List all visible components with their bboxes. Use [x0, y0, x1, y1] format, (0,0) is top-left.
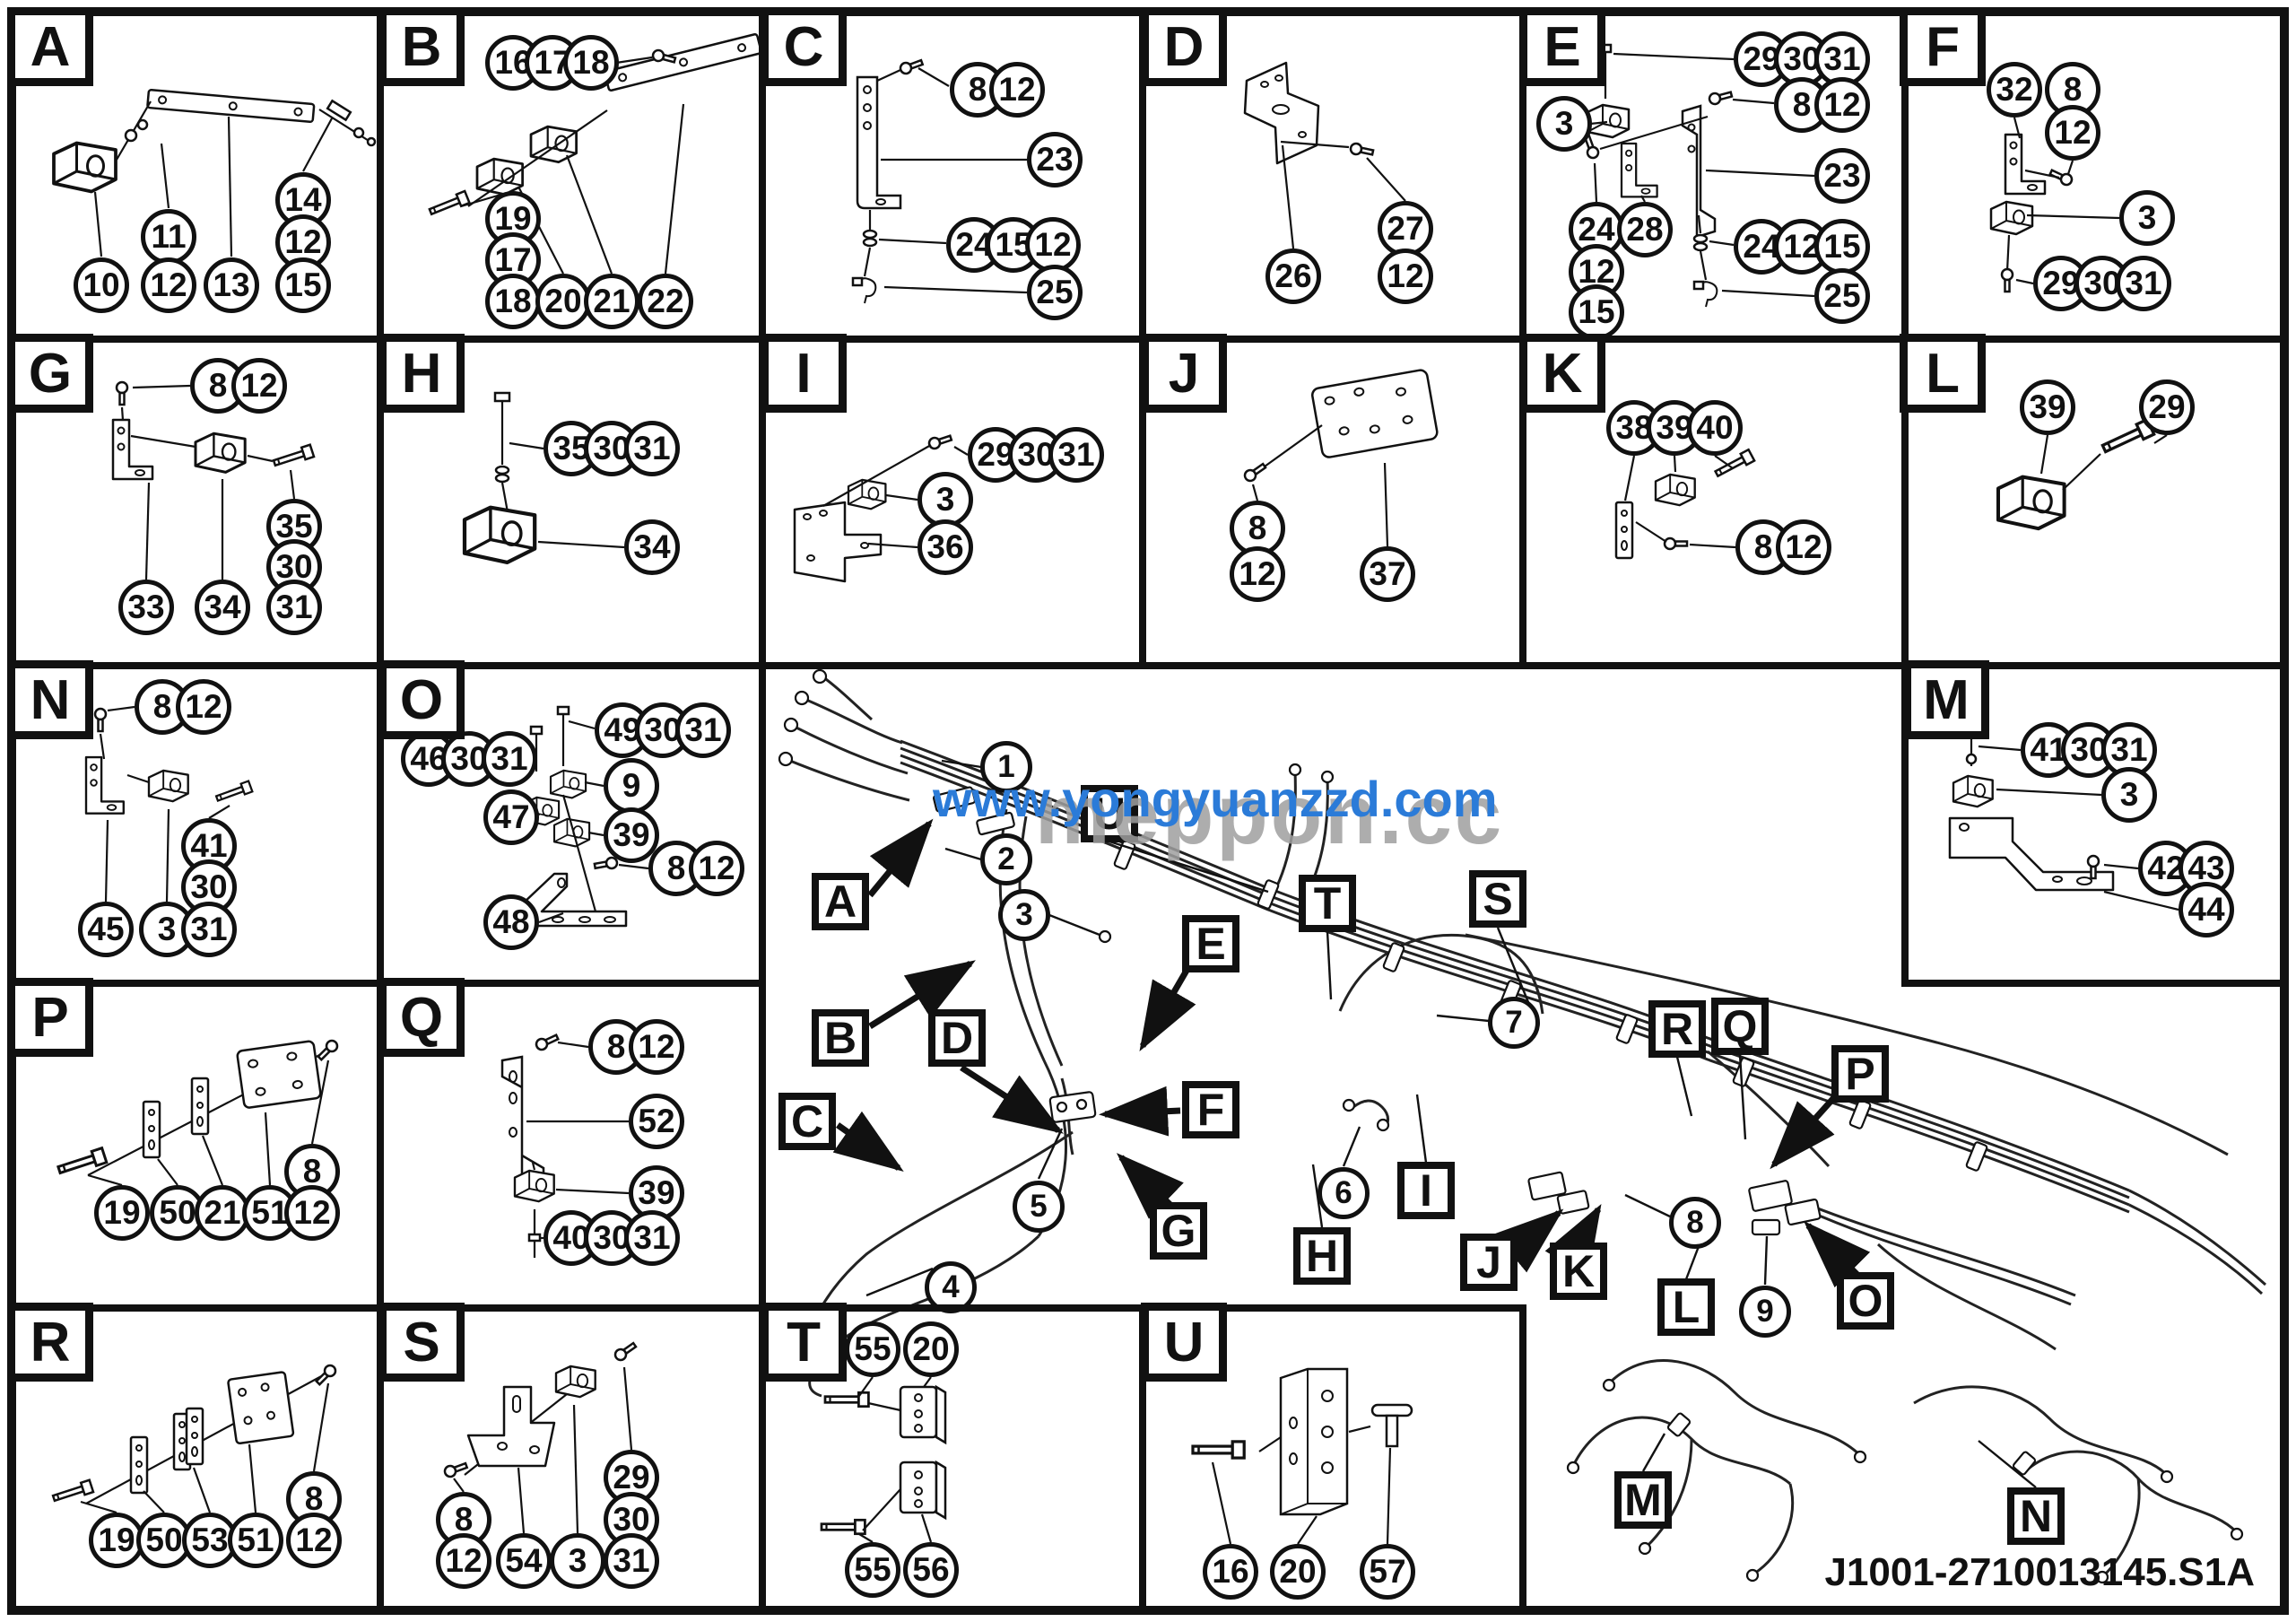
panel-label: L: [1900, 334, 1986, 413]
panel-D: D 26 27 12: [1150, 16, 1519, 332]
panel-label: F: [1900, 7, 1986, 86]
assembly-ref-label: O: [1837, 1272, 1894, 1330]
part-callout: 12: [1814, 77, 1870, 133]
part-callout: 23: [1814, 148, 1870, 204]
panel-K: K 38 39 40 8 12: [1528, 343, 1901, 658]
assembly-callout: 8: [1669, 1197, 1721, 1249]
assembly-callout: 6: [1318, 1167, 1370, 1219]
part-callout: 26: [1265, 249, 1321, 304]
part-callout: 34: [195, 580, 250, 635]
assembly-ref-label: C: [778, 1093, 836, 1150]
assembly-ref-label: D: [928, 1009, 986, 1067]
part-callout: 12: [286, 1513, 342, 1568]
part-callout: 54: [496, 1533, 552, 1589]
part-callout: 3: [1536, 96, 1592, 152]
part-callout: 29: [2139, 379, 2195, 435]
part-callout: 31: [675, 702, 731, 758]
part-callout: 12: [436, 1533, 491, 1589]
part-callout: 31: [624, 421, 680, 476]
panel-label: K: [1519, 334, 1605, 413]
part-callout: 47: [483, 789, 539, 845]
panel-P: P 19 50 21 51 8 12: [16, 987, 377, 1301]
panel-N: N 8 12 45 3 41 30 31: [16, 669, 377, 980]
grid-line: [1901, 980, 2289, 987]
part-callout: 20: [1270, 1544, 1326, 1600]
part-callout: 56: [903, 1542, 959, 1598]
panel-label: P: [7, 978, 93, 1057]
part-callout: 11: [141, 209, 196, 265]
assembly-ref-label: F: [1182, 1081, 1239, 1138]
assembly-ref-label: G: [1150, 1202, 1207, 1260]
part-callout: 12: [989, 62, 1045, 118]
part-callout: 34: [624, 519, 680, 575]
panel-label: G: [7, 334, 93, 413]
panel-C: C 8 12 23 24 15 12 25: [770, 16, 1139, 332]
part-callout: 31: [624, 1210, 680, 1266]
assembly-ref-label: S: [1469, 870, 1526, 928]
part-callout: 20: [535, 274, 591, 329]
part-callout: 12: [141, 257, 196, 313]
panel-label: Q: [378, 978, 465, 1057]
part-callout: 31: [1048, 427, 1104, 483]
part-callout: 18: [485, 274, 541, 329]
part-callout: 51: [228, 1513, 283, 1568]
panel-R: R 19 50 53 51 8 12: [16, 1312, 377, 1606]
panel-label: N: [7, 660, 93, 739]
part-callout: 3: [2101, 767, 2157, 823]
part-callout: 55: [845, 1542, 900, 1598]
panel-L: L 39 29: [1909, 343, 2280, 658]
panel-B: B 16 17 18 19 17 18 20 21 22: [387, 16, 759, 332]
panel-H: H 35 30 31 34: [387, 343, 759, 658]
panel-label: R: [7, 1303, 93, 1382]
part-callout: 40: [1687, 400, 1743, 456]
part-callout: 9: [604, 758, 659, 814]
part-callout: 37: [1360, 546, 1415, 602]
part-callout: 31: [181, 902, 237, 957]
panel-label: D: [1141, 7, 1227, 86]
assembly-ref-label: B: [812, 1009, 869, 1067]
part-callout: 55: [845, 1321, 900, 1377]
part-callout: 12: [1378, 249, 1433, 304]
panel-label: O: [378, 660, 465, 739]
assembly-callout: 9: [1739, 1286, 1791, 1338]
assembly-ref-label: A: [812, 873, 869, 930]
part-callout: 25: [1027, 265, 1083, 320]
part-callout: 45: [78, 902, 134, 957]
assembly-ref-label: R: [1648, 1000, 1706, 1058]
drawing-number: J1001-2710013145.S1A: [1788, 1550, 2255, 1595]
panel-U: U 16 20 57: [1150, 1312, 1521, 1606]
part-callout: 12: [284, 1185, 340, 1241]
part-callout: 10: [74, 257, 129, 313]
part-callout: 12: [176, 679, 231, 735]
assembly-callout: 7: [1488, 997, 1540, 1049]
assembly-ref-label: L: [1657, 1278, 1715, 1336]
panel-label: C: [761, 7, 847, 86]
panel-O: O 49 30 31 46 30 31 9 47 39 8 12 48: [387, 669, 759, 980]
assembly-ref-label: T: [1299, 875, 1356, 932]
grid-line: [7, 1606, 2289, 1615]
part-callout: 28: [1617, 202, 1673, 257]
panel-label: M: [1903, 660, 1989, 739]
part-callout: 12: [231, 358, 287, 414]
panel-label: S: [378, 1303, 465, 1382]
part-callout: 12: [2045, 105, 2100, 161]
part-callout: 13: [204, 257, 259, 313]
panel-label: A: [7, 7, 93, 86]
grid-line: [1901, 7, 1909, 987]
assembly-ref-label: K: [1550, 1243, 1607, 1300]
part-callout: 25: [1814, 268, 1870, 324]
panel-F: F 32 8 12 3 29 30 31: [1909, 16, 2280, 332]
panel-E: E 29 30 31 8 12 3 23 24: [1528, 16, 1901, 332]
part-callout: 3: [550, 1533, 605, 1589]
part-callout: 20: [903, 1321, 959, 1377]
part-callout: 31: [482, 731, 537, 787]
panel-A: A 10 11 12 13 14 12 15: [16, 16, 377, 332]
panel-S: S 8 12 54 3 29 30 31: [387, 1312, 759, 1606]
part-callout: 31: [604, 1533, 659, 1589]
part-callout: 12: [629, 1019, 684, 1075]
assembly-ref-label: M: [1614, 1471, 1672, 1529]
assembly-callout: 3: [998, 889, 1050, 941]
part-callout: 44: [2179, 882, 2234, 937]
panel-Q: Q 8 12 52 39 40 30 31: [387, 987, 759, 1301]
part-callout: 12: [1776, 519, 1831, 575]
assembly-ref-label: I: [1397, 1162, 1455, 1219]
part-callout: 31: [2116, 256, 2171, 311]
part-callout: 36: [918, 519, 973, 575]
part-callout: 57: [1360, 1544, 1415, 1600]
panel-label: T: [761, 1303, 847, 1382]
assembly-callout: 5: [1013, 1181, 1065, 1233]
panel-label: J: [1141, 334, 1227, 413]
grid-line: [2280, 7, 2289, 1615]
part-callout: 15: [1569, 284, 1624, 340]
parts-diagram-page: A 10 11 12 13 14 12 15 B: [0, 0, 2296, 1622]
part-callout: 52: [629, 1094, 684, 1149]
part-callout: 21: [584, 274, 639, 329]
part-callout: 15: [1814, 219, 1870, 275]
watermark-url: www.yongyuanzzd.com: [933, 770, 1498, 828]
panel-label: H: [378, 334, 465, 413]
part-callout: 18: [563, 35, 619, 91]
panel-M: M 41 30 31 3 42 43 44: [1912, 669, 2280, 980]
part-callout: 32: [1987, 62, 2042, 118]
panel-label: B: [378, 7, 465, 86]
assembly-callout: 2: [980, 833, 1032, 885]
part-callout: 3: [2119, 190, 2175, 246]
panel-label: E: [1519, 7, 1605, 86]
part-callout: 16: [1203, 1544, 1258, 1600]
part-callout: 22: [638, 274, 693, 329]
assembly-ref-label: J: [1460, 1234, 1518, 1291]
assembly-ref-label: E: [1182, 915, 1239, 972]
part-callout: 48: [483, 894, 539, 950]
part-callout: 33: [118, 580, 174, 635]
panel-label: U: [1141, 1303, 1227, 1382]
panel-label: I: [761, 334, 847, 413]
part-callout: 19: [94, 1185, 150, 1241]
part-callout: 15: [275, 257, 331, 313]
part-callout: 12: [1230, 546, 1285, 602]
panel-I: I 29 30 31 3 36: [770, 343, 1139, 658]
part-callout: 31: [266, 580, 322, 635]
assembly-ref-label: Q: [1711, 998, 1769, 1055]
part-callout: 39: [2020, 379, 2075, 435]
part-callout: 23: [1027, 132, 1083, 187]
part-callout: 12: [689, 841, 744, 896]
assembly-ref-label: H: [1293, 1227, 1351, 1285]
panel-G: G 8 12 33 34 35 30 31: [16, 343, 377, 658]
assembly-ref-label: P: [1831, 1045, 1889, 1103]
panel-J: J 8 12 37: [1150, 343, 1519, 658]
assembly-ref-label: N: [2007, 1487, 2065, 1545]
panel-T: T 55 20 55 56: [770, 1312, 1139, 1606]
